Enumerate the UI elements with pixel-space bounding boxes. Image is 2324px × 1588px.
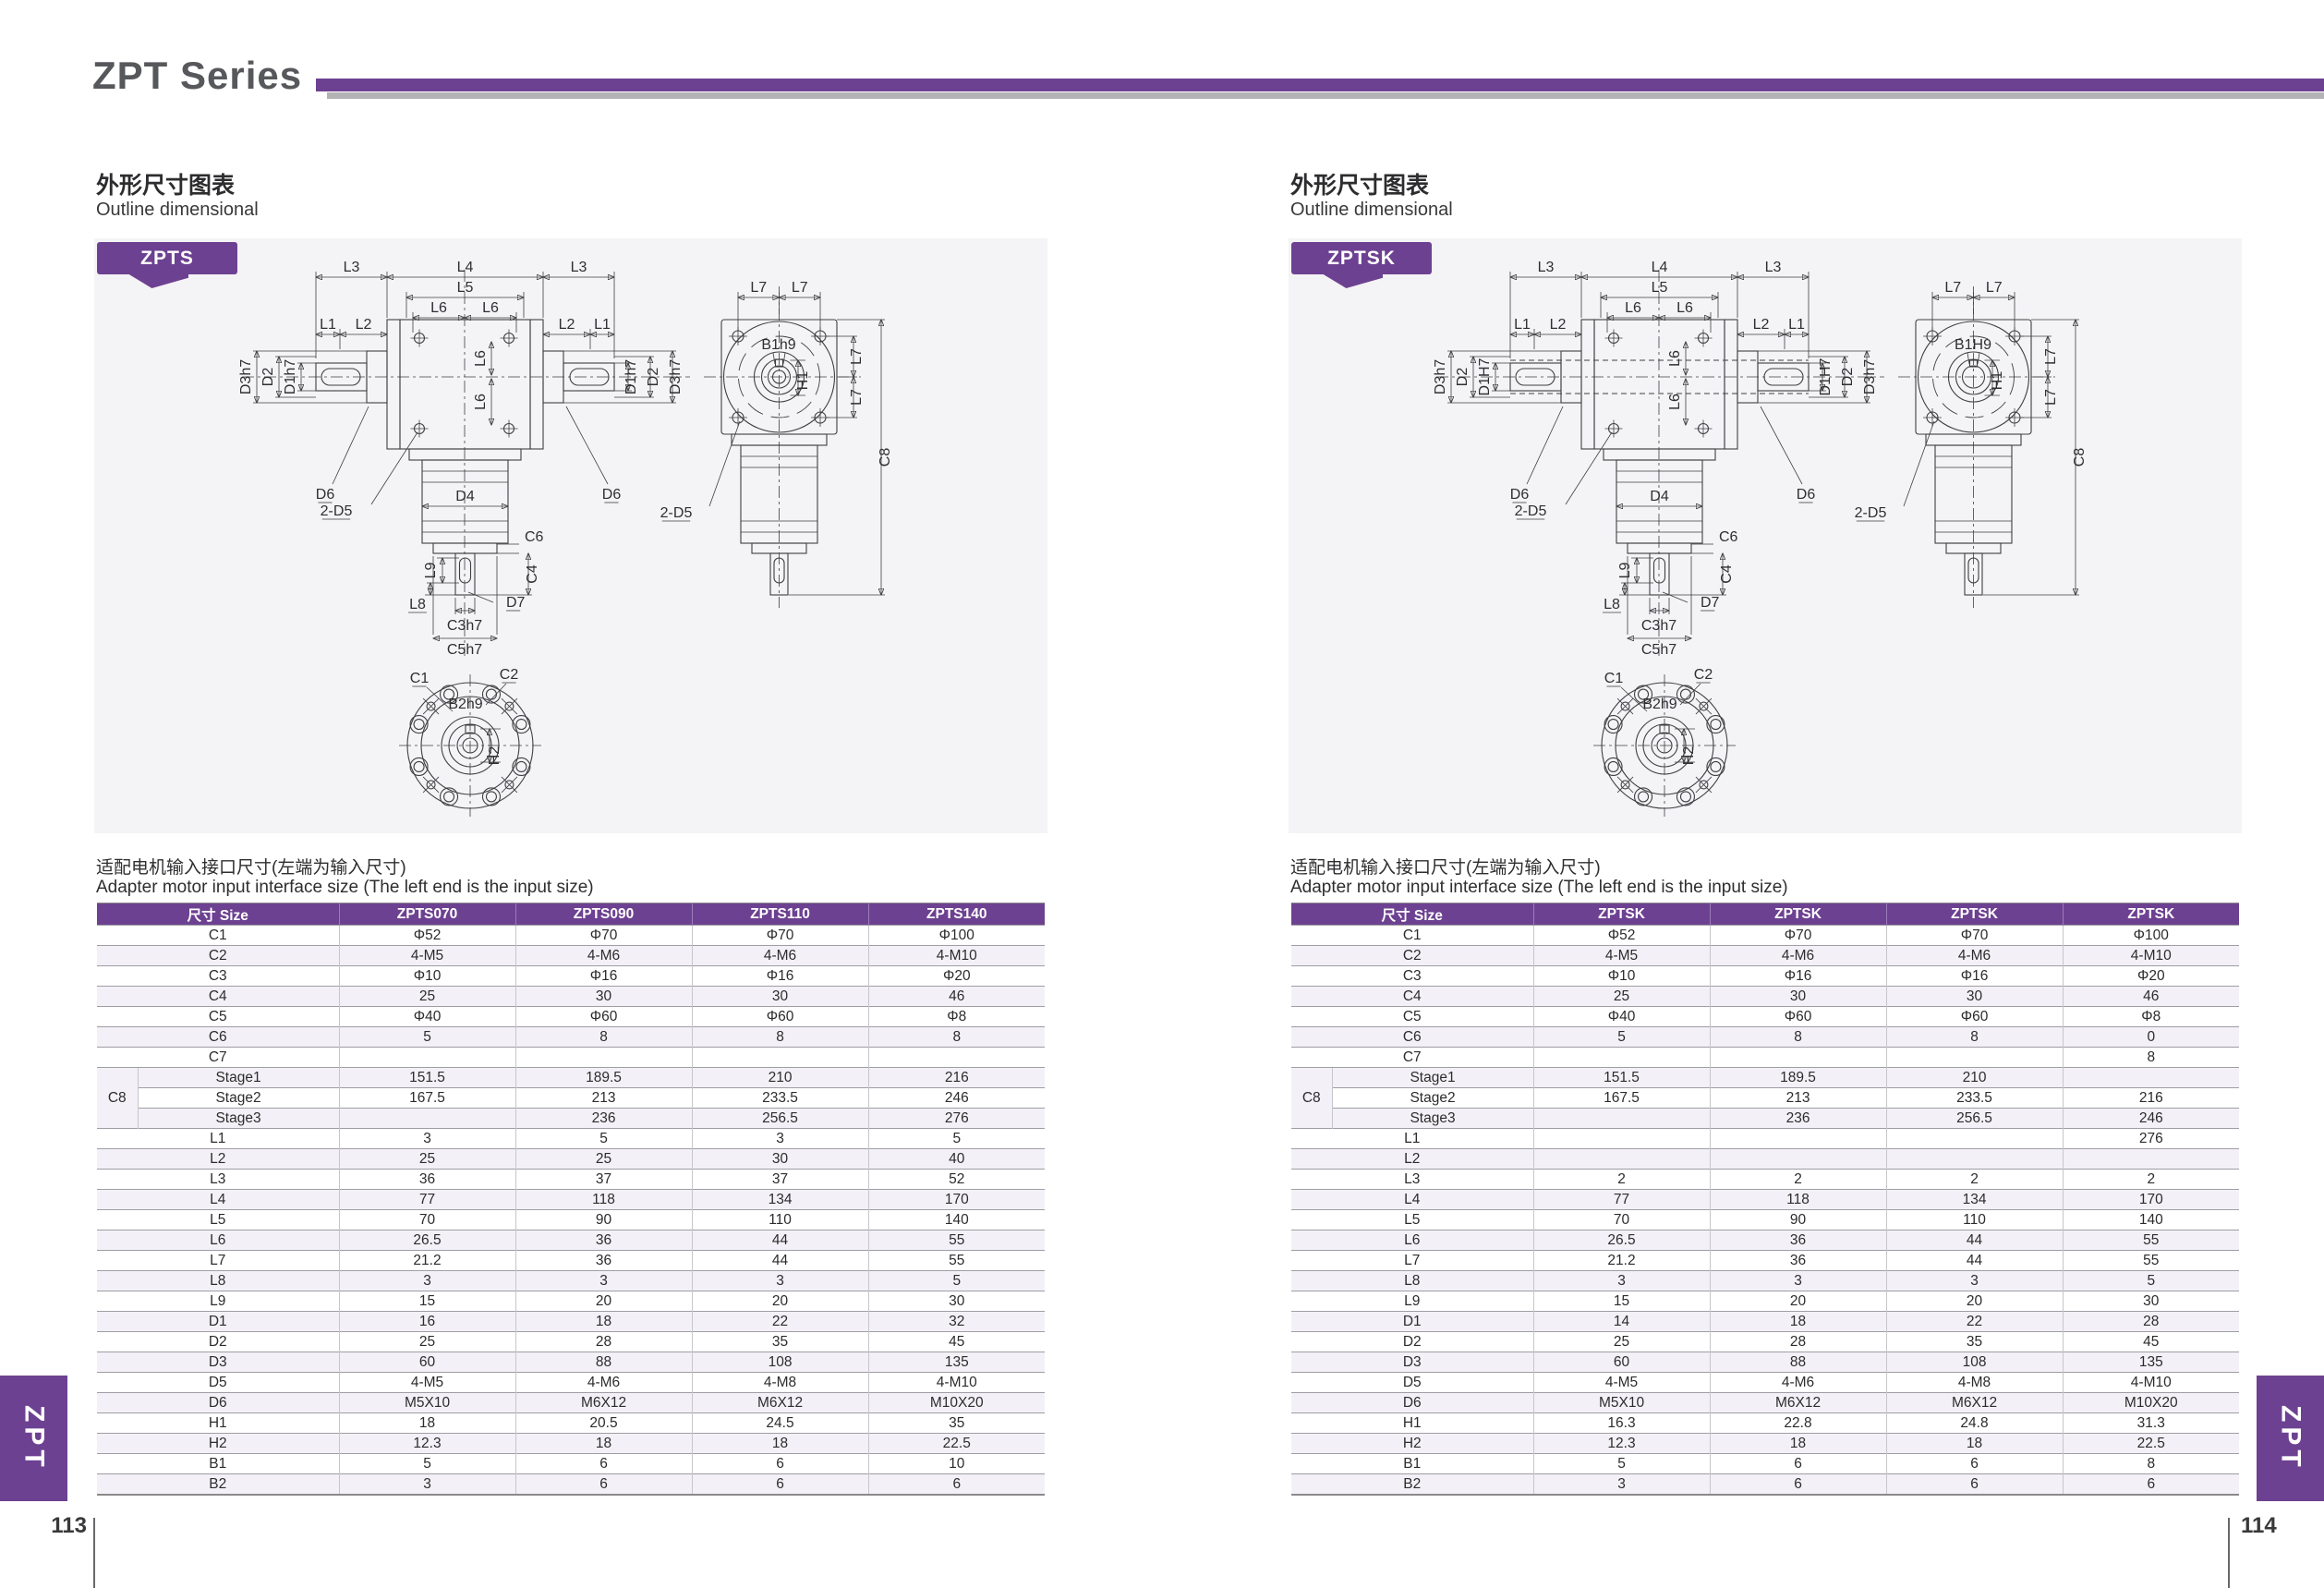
page-left: 外形尺寸图表 Outline dimensional L3L4L3L5L6L6L… xyxy=(94,0,1050,1588)
section-title-zh: 外形尺寸图表 xyxy=(96,167,235,200)
table-row: L477118134170 xyxy=(1291,1190,2239,1210)
table-cell: Φ70 xyxy=(1710,926,1886,946)
svg-text:B2h9: B2h9 xyxy=(448,697,482,712)
table-cell: 216 xyxy=(2063,1088,2239,1109)
table-cell: 30 xyxy=(1710,987,1886,1007)
technical-drawing: L3L4L3L5L6L6L1L2L2L1D3h7D2D1H7D1H7D2D3h7… xyxy=(1289,238,2242,833)
column-header: ZPTSK xyxy=(2063,903,2239,926)
table-row: L721.2364455 xyxy=(1291,1251,2239,1271)
svg-text:D1h7: D1h7 xyxy=(283,359,298,394)
table-cell: 20 xyxy=(515,1291,692,1312)
table-cell: 6 xyxy=(1710,1474,1886,1496)
table-cell: 2 xyxy=(1533,1170,1710,1190)
table-row: L477118134170 xyxy=(97,1190,1045,1210)
table-cell: 22 xyxy=(1886,1312,2063,1332)
row-label: H2 xyxy=(97,1434,339,1454)
table-cell: 3 xyxy=(692,1271,868,1291)
table-cell: 22.5 xyxy=(2063,1434,2239,1454)
row-label: B1 xyxy=(97,1454,339,1474)
table-cell: 18 xyxy=(515,1434,692,1454)
table-cell: 77 xyxy=(1533,1190,1710,1210)
svg-text:B1H9: B1H9 xyxy=(1955,337,1991,353)
table-row: H116.322.824.831.3 xyxy=(1291,1413,2239,1434)
table-cell: 118 xyxy=(515,1190,692,1210)
table-cell: 60 xyxy=(339,1352,515,1373)
table-header-row: 尺寸 SizeZPTS070ZPTS090ZPTS110ZPTS140 xyxy=(97,903,1045,926)
row-label: Stage2 xyxy=(138,1088,339,1109)
table-cell: 12.3 xyxy=(1533,1434,1710,1454)
table-cell: 6 xyxy=(1710,1454,1886,1474)
svg-text:L6: L6 xyxy=(473,350,489,367)
table-row: C65880 xyxy=(1291,1027,2239,1048)
table-cell: 256.5 xyxy=(692,1109,868,1129)
table-row: C24-M54-M64-M64-M10 xyxy=(97,946,1045,966)
table-cell: Φ16 xyxy=(1886,966,2063,987)
table-cell: 12.3 xyxy=(339,1434,515,1454)
svg-text:L2: L2 xyxy=(559,317,575,333)
svg-text:2-D5: 2-D5 xyxy=(1855,505,1887,521)
table-cell: 4-M5 xyxy=(339,1373,515,1393)
svg-text:L4: L4 xyxy=(1652,260,1668,275)
table-cell: 213 xyxy=(1710,1088,1886,1109)
table-cell: 5 xyxy=(2063,1271,2239,1291)
table-cell: 140 xyxy=(868,1210,1045,1230)
table-cell: 46 xyxy=(2063,987,2239,1007)
table-cell: 26.5 xyxy=(1533,1230,1710,1251)
svg-text:H1: H1 xyxy=(795,371,811,391)
row-label: C2 xyxy=(97,946,339,966)
table-cell: M6X12 xyxy=(692,1393,868,1413)
table-row: D36088108135 xyxy=(1291,1352,2239,1373)
svg-text:D7: D7 xyxy=(1701,595,1720,611)
table-cell: 151.5 xyxy=(339,1068,515,1088)
row-label: D1 xyxy=(97,1312,339,1332)
table-row: C65888 xyxy=(97,1027,1045,1048)
table-row: C8Stage1151.5189.5210 xyxy=(1291,1068,2239,1088)
table-cell xyxy=(692,1048,868,1068)
table-cell: Φ52 xyxy=(339,926,515,946)
svg-text:D6: D6 xyxy=(602,487,622,503)
table-cell xyxy=(2063,1068,2239,1088)
svg-text:L9: L9 xyxy=(423,563,439,579)
svg-text:D4: D4 xyxy=(1650,489,1669,504)
row-label: H2 xyxy=(1291,1434,1533,1454)
table-cell: 8 xyxy=(2063,1048,2239,1068)
table-cell: 22.5 xyxy=(868,1434,1045,1454)
table-cell: 134 xyxy=(1886,1190,2063,1210)
table-cell: 28 xyxy=(1710,1332,1886,1352)
table-cell: 4-M6 xyxy=(1710,1373,1886,1393)
row-label: L1 xyxy=(1291,1129,1533,1149)
row-label: C1 xyxy=(1291,926,1533,946)
table-cell: 18 xyxy=(1710,1312,1886,1332)
table-cell: 28 xyxy=(2063,1312,2239,1332)
row-label: B2 xyxy=(1291,1474,1533,1496)
table-cell: 25 xyxy=(339,987,515,1007)
row-label: L1 xyxy=(97,1129,339,1149)
table-cell xyxy=(1710,1149,1886,1170)
technical-drawing: L3L4L3L5L6L6L1L2L2L1D3h7D2D1h7D1h7D2D3h7… xyxy=(94,238,1047,833)
table-cell: 20 xyxy=(1886,1291,2063,1312)
table-cell: 44 xyxy=(692,1230,868,1251)
table-cell: 21.2 xyxy=(1533,1251,1710,1271)
table-cell: 4-M5 xyxy=(1533,946,1710,966)
table-cell xyxy=(868,1048,1045,1068)
table-row: L83335 xyxy=(1291,1271,2239,1291)
table-row: Stage2167.5213233.5216 xyxy=(1291,1088,2239,1109)
table-cell: 20.5 xyxy=(515,1413,692,1434)
table-row: D36088108135 xyxy=(97,1352,1045,1373)
svg-text:L7: L7 xyxy=(2043,389,2059,406)
svg-text:L7: L7 xyxy=(849,389,865,406)
table-cell: 6 xyxy=(515,1474,692,1496)
table-cell: 88 xyxy=(1710,1352,1886,1373)
table-cell: 36 xyxy=(1710,1230,1886,1251)
row-label: Stage3 xyxy=(138,1109,339,1129)
table-cell: 55 xyxy=(868,1251,1045,1271)
svg-text:D7: D7 xyxy=(506,595,526,611)
table-cell: M10X20 xyxy=(868,1393,1045,1413)
svg-text:L3: L3 xyxy=(571,260,587,275)
table-cell: 170 xyxy=(868,1190,1045,1210)
row-label: D1 xyxy=(1291,1312,1533,1332)
row-label: D3 xyxy=(97,1352,339,1373)
table-cell: 2 xyxy=(1710,1170,1886,1190)
table-cell: 35 xyxy=(692,1332,868,1352)
table-cell: Φ40 xyxy=(339,1007,515,1027)
column-header: 尺寸 Size xyxy=(97,903,339,926)
table-cell: 30 xyxy=(868,1291,1045,1312)
table-cell: 28 xyxy=(515,1332,692,1352)
table-cell: 88 xyxy=(515,1352,692,1373)
row-label: L5 xyxy=(1291,1210,1533,1230)
table-cell: 134 xyxy=(692,1190,868,1210)
row-label: L7 xyxy=(97,1251,339,1271)
table-cell: 45 xyxy=(868,1332,1045,1352)
table-row: Stage3 236256.5246 xyxy=(1291,1109,2239,1129)
table-row: C5Φ40Φ60Φ60Φ8 xyxy=(1291,1007,2239,1027)
table-cell: Φ100 xyxy=(868,926,1045,946)
table-cell: Φ8 xyxy=(868,1007,1045,1027)
table-cell: 216 xyxy=(868,1068,1045,1088)
table-cell xyxy=(1886,1149,2063,1170)
row-label: C7 xyxy=(97,1048,339,1068)
table-cell: 15 xyxy=(339,1291,515,1312)
note-en: Adapter motor input interface size (The … xyxy=(1290,878,1788,898)
table-cell: Φ100 xyxy=(2063,926,2239,946)
table-cell: 4-M10 xyxy=(2063,1373,2239,1393)
table-cell: 4-M5 xyxy=(339,946,515,966)
table-cell: 21.2 xyxy=(339,1251,515,1271)
column-header: ZPTS110 xyxy=(692,903,868,926)
row-label: L4 xyxy=(97,1190,339,1210)
svg-text:C3h7: C3h7 xyxy=(1641,618,1676,634)
table-cell xyxy=(1533,1149,1710,1170)
table-cell: 2 xyxy=(2063,1170,2239,1190)
table-cell xyxy=(1710,1048,1886,1068)
table-cell: 70 xyxy=(339,1210,515,1230)
table-cell: 16.3 xyxy=(1533,1413,1710,1434)
table-cell: 25 xyxy=(1533,987,1710,1007)
row-label: H1 xyxy=(1291,1413,1533,1434)
table-row: Stage3 236256.5276 xyxy=(97,1109,1045,1129)
svg-text:L7: L7 xyxy=(750,280,767,296)
svg-text:L3: L3 xyxy=(1765,260,1782,275)
table-cell: 233.5 xyxy=(692,1088,868,1109)
column-header: ZPTSK xyxy=(1533,903,1710,926)
table-cell: 236 xyxy=(515,1109,692,1129)
table-cell: 30 xyxy=(515,987,692,1007)
table-row: H11820.524.535 xyxy=(97,1413,1045,1434)
table-cell: Φ70 xyxy=(515,926,692,946)
svg-text:L2: L2 xyxy=(1753,317,1770,333)
table-row: L1 276 xyxy=(1291,1129,2239,1149)
table-cell: 44 xyxy=(1886,1251,2063,1271)
svg-text:H1: H1 xyxy=(1990,371,2005,391)
svg-text:D3h7: D3h7 xyxy=(1862,359,1878,394)
model-tab: ZPTSK xyxy=(1291,242,1432,274)
table-cell: 4-M8 xyxy=(1886,1373,2063,1393)
table-row: D54-M54-M64-M84-M10 xyxy=(1291,1373,2239,1393)
svg-text:C1: C1 xyxy=(410,671,430,686)
table-cell: 40 xyxy=(868,1149,1045,1170)
page-number-rule xyxy=(2228,1518,2230,1588)
table-row: B156610 xyxy=(97,1454,1045,1474)
table-cell: 35 xyxy=(868,1413,1045,1434)
svg-text:L7: L7 xyxy=(792,280,808,296)
table-cell: 77 xyxy=(339,1190,515,1210)
table-cell: 52 xyxy=(868,1170,1045,1190)
table-row: L626.5364455 xyxy=(97,1230,1045,1251)
table-cell: 22 xyxy=(692,1312,868,1332)
table-cell: 32 xyxy=(868,1312,1045,1332)
row-label: D2 xyxy=(1291,1332,1533,1352)
table-cell: 3 xyxy=(1533,1474,1710,1496)
svg-text:D2: D2 xyxy=(260,368,276,387)
table-cell: 30 xyxy=(692,1149,868,1170)
series-side-tab: ZPT xyxy=(0,1376,67,1501)
row-label: L5 xyxy=(97,1210,339,1230)
table-cell: 4-M8 xyxy=(692,1373,868,1393)
spec-table-grid: 尺寸 SizeZPTSKZPTSKZPTSKZPTSKC1Φ52Φ70Φ70Φ1… xyxy=(1291,903,2239,1496)
svg-text:D4: D4 xyxy=(455,489,475,504)
row-label: C1 xyxy=(97,926,339,946)
table-row: C1Φ52Φ70Φ70Φ100 xyxy=(1291,926,2239,946)
table-cell: 70 xyxy=(1533,1210,1710,1230)
table-cell: 4-M6 xyxy=(1886,946,2063,966)
svg-text:L7: L7 xyxy=(1944,280,1961,296)
table-cell xyxy=(515,1048,692,1068)
table-cell: 0 xyxy=(2063,1027,2239,1048)
svg-text:L2: L2 xyxy=(1550,317,1567,333)
table-cell xyxy=(1533,1048,1710,1068)
section-title-en: Outline dimensional xyxy=(96,200,259,221)
table-cell: 167.5 xyxy=(339,1088,515,1109)
table-cell: 140 xyxy=(2063,1210,2239,1230)
table-cell: 4-M6 xyxy=(515,1373,692,1393)
svg-text:L6: L6 xyxy=(1625,300,1641,316)
table-cell: Φ60 xyxy=(1886,1007,2063,1027)
svg-text:L6: L6 xyxy=(473,394,489,410)
page-number: 113 xyxy=(0,1513,87,1539)
row-label: C2 xyxy=(1291,946,1533,966)
svg-text:L9: L9 xyxy=(1617,563,1633,579)
table-cell: 4-M6 xyxy=(515,946,692,966)
svg-text:L8: L8 xyxy=(1604,597,1620,612)
table-cell xyxy=(1886,1129,2063,1149)
table-cell: 46 xyxy=(868,987,1045,1007)
table-cell: 3 xyxy=(1886,1271,2063,1291)
row-label: L8 xyxy=(97,1271,339,1291)
table-cell: 36 xyxy=(1710,1251,1886,1271)
table-cell: M6X12 xyxy=(515,1393,692,1413)
table-cell: 4-M10 xyxy=(2063,946,2239,966)
table-row: D6M5X10M6X12M6X12M10X20 xyxy=(1291,1393,2239,1413)
row-label: C7 xyxy=(1291,1048,1533,1068)
table-cell: 3 xyxy=(692,1129,868,1149)
row-label: C3 xyxy=(1291,966,1533,987)
svg-text:C4: C4 xyxy=(525,564,540,584)
table-cell: 30 xyxy=(1886,987,2063,1007)
row-group-label: C8 xyxy=(97,1068,138,1129)
table-cell: 3 xyxy=(339,1271,515,1291)
table-cell: 25 xyxy=(515,1149,692,1170)
table-cell: 170 xyxy=(2063,1190,2239,1210)
table-row: H212.3181822.5 xyxy=(97,1434,1045,1454)
svg-text:B2h9: B2h9 xyxy=(1642,697,1676,712)
table-cell: 189.5 xyxy=(1710,1068,1886,1088)
row-label: Stage3 xyxy=(1332,1109,1533,1129)
svg-text:2-D5: 2-D5 xyxy=(1515,503,1547,519)
table-cell: 108 xyxy=(692,1352,868,1373)
table-cell: 8 xyxy=(692,1027,868,1048)
svg-text:L4: L4 xyxy=(457,260,474,275)
page-number: 114 xyxy=(2241,1513,2277,1539)
table-cell: 8 xyxy=(2063,1454,2239,1474)
svg-text:D6: D6 xyxy=(1797,487,1816,503)
section-title-en: Outline dimensional xyxy=(1290,200,1453,221)
drawing-panel: L3L4L3L5L6L6L1L2L2L1D3h7D2D1H7D1H7D2D3h7… xyxy=(1289,238,2242,833)
table-cell: 6 xyxy=(1886,1454,2063,1474)
table-row: D114182228 xyxy=(1291,1312,2239,1332)
row-label: D3 xyxy=(1291,1352,1533,1373)
table-row: Stage2167.5213233.5246 xyxy=(97,1088,1045,1109)
table-cell: 31.3 xyxy=(2063,1413,2239,1434)
spec-table: 尺寸 SizeZPTSKZPTSKZPTSKZPTSKC1Φ52Φ70Φ70Φ1… xyxy=(1291,903,2239,1496)
table-cell: 8 xyxy=(1710,1027,1886,1048)
table-cell: 276 xyxy=(868,1109,1045,1129)
row-label: C6 xyxy=(1291,1027,1533,1048)
table-cell: 24.8 xyxy=(1886,1413,2063,1434)
svg-text:L1: L1 xyxy=(1788,317,1805,333)
table-cell: 5 xyxy=(339,1454,515,1474)
table-cell: 6 xyxy=(1886,1474,2063,1496)
svg-text:D3h7: D3h7 xyxy=(668,359,684,394)
table-cell: 256.5 xyxy=(1886,1109,2063,1129)
table-cell: 135 xyxy=(2063,1352,2239,1373)
table-cell: 6 xyxy=(692,1454,868,1474)
svg-text:L3: L3 xyxy=(344,260,360,275)
table-row: C1Φ52Φ70Φ70Φ100 xyxy=(97,926,1045,946)
table-cell: 6 xyxy=(515,1454,692,1474)
table-cell: M6X12 xyxy=(1886,1393,2063,1413)
page-right: 外形尺寸图表 Outline dimensional L3L4L3L5L6L6L… xyxy=(1289,0,2245,1588)
table-cell: 118 xyxy=(1710,1190,1886,1210)
svg-text:D1H7: D1H7 xyxy=(1477,358,1493,395)
table-cell: 20 xyxy=(692,1291,868,1312)
table-cell: 135 xyxy=(868,1352,1045,1373)
row-label: L6 xyxy=(97,1230,339,1251)
table-cell: Φ20 xyxy=(868,966,1045,987)
table-cell: 4-M6 xyxy=(1710,946,1886,966)
series-side-tab-label: ZPT xyxy=(2275,1405,2306,1472)
svg-text:L6: L6 xyxy=(1676,300,1693,316)
svg-text:C4: C4 xyxy=(1719,564,1735,584)
svg-text:L7: L7 xyxy=(849,348,865,365)
table-row: C5Φ40Φ60Φ60Φ8 xyxy=(97,1007,1045,1027)
table-cell: Φ70 xyxy=(1886,926,2063,946)
series-side-tab-label: ZPT xyxy=(18,1405,50,1472)
table-cell: 60 xyxy=(1533,1352,1710,1373)
row-label: L3 xyxy=(1291,1170,1533,1190)
column-header: ZPTSK xyxy=(1710,903,1886,926)
table-cell: 25 xyxy=(1533,1332,1710,1352)
table-cell xyxy=(339,1048,515,1068)
row-label: D2 xyxy=(97,1332,339,1352)
table-cell: Φ16 xyxy=(692,966,868,987)
svg-text:C5h7: C5h7 xyxy=(1641,642,1676,658)
table-cell: 4-M6 xyxy=(692,946,868,966)
table-cell: 210 xyxy=(692,1068,868,1088)
table-row: C7 xyxy=(97,1048,1045,1068)
table-cell: 16 xyxy=(339,1312,515,1332)
series-side-tab: ZPT xyxy=(2257,1376,2324,1501)
svg-text:D1H7: D1H7 xyxy=(1818,358,1834,395)
row-label: H1 xyxy=(97,1413,339,1434)
table-row: L57090110140 xyxy=(1291,1210,2239,1230)
table-cell: 36 xyxy=(515,1230,692,1251)
table-cell: Φ16 xyxy=(515,966,692,987)
table-cell: 8 xyxy=(515,1027,692,1048)
table-cell: 4-M10 xyxy=(868,1373,1045,1393)
table-cell: 18 xyxy=(1886,1434,2063,1454)
table-cell: Φ20 xyxy=(2063,966,2239,987)
svg-text:H2: H2 xyxy=(487,746,502,766)
table-cell: 15 xyxy=(1533,1291,1710,1312)
table-row: D6M5X10M6X12M6X12M10X20 xyxy=(97,1393,1045,1413)
table-cell: 110 xyxy=(1886,1210,2063,1230)
table-row: C3Φ10Φ16Φ16Φ20 xyxy=(1291,966,2239,987)
column-header: ZPTSK xyxy=(1886,903,2063,926)
row-group-label: C8 xyxy=(1291,1068,1332,1129)
spec-table: 尺寸 SizeZPTS070ZPTS090ZPTS110ZPTS140C1Φ52… xyxy=(97,903,1045,1496)
svg-text:L1: L1 xyxy=(594,317,611,333)
svg-text:C8: C8 xyxy=(2072,448,2088,467)
column-header: 尺寸 Size xyxy=(1291,903,1533,926)
table-cell: 4-M5 xyxy=(1533,1373,1710,1393)
svg-text:L6: L6 xyxy=(1667,394,1683,410)
svg-text:D2: D2 xyxy=(1455,368,1471,387)
row-label: D5 xyxy=(1291,1373,1533,1393)
table-cell: 55 xyxy=(868,1230,1045,1251)
svg-text:L5: L5 xyxy=(457,280,474,296)
row-label: D5 xyxy=(97,1373,339,1393)
svg-text:D1h7: D1h7 xyxy=(623,359,639,394)
table-row: D116182232 xyxy=(97,1312,1045,1332)
table-row: L2 xyxy=(1291,1149,2239,1170)
table-cell: 55 xyxy=(2063,1251,2239,1271)
table-cell: 5 xyxy=(339,1027,515,1048)
